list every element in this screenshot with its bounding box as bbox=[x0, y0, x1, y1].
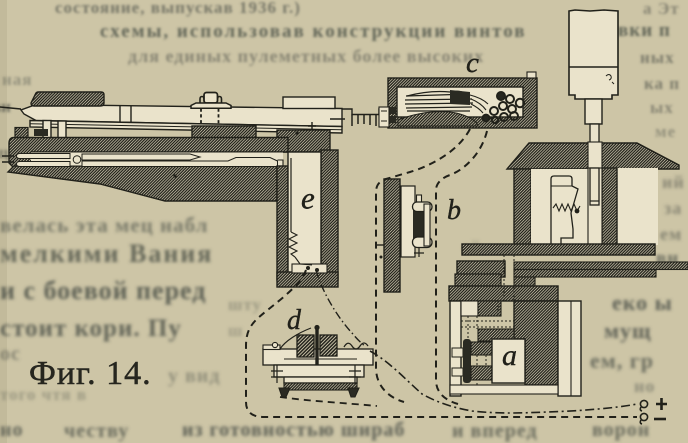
svg-text:ем, гр: ем, гр bbox=[590, 348, 654, 373]
svg-text:a: a bbox=[502, 339, 517, 372]
svg-text:b: b bbox=[447, 195, 461, 226]
svg-text:ос: ос bbox=[0, 343, 21, 365]
svg-text:честву: честву bbox=[64, 420, 129, 442]
svg-text:состояние, выпускав 1936 г.): состояние, выпускав 1936 г.) bbox=[55, 0, 301, 17]
svg-text:еко ы: еко ы bbox=[612, 290, 673, 315]
svg-text:ворон: ворон bbox=[592, 419, 650, 441]
svg-text:из готовностью шираб: из готовностью шираб bbox=[182, 419, 405, 441]
svg-text:а Эт: а Эт bbox=[643, 0, 680, 18]
svg-text:и вперед: и вперед bbox=[452, 420, 538, 442]
svg-text:мелкими Вания: мелкими Вания bbox=[0, 239, 213, 268]
svg-text:и с боевой перед: и с боевой перед bbox=[0, 276, 206, 305]
svg-text:ных: ных bbox=[640, 48, 675, 67]
svg-text:d: d bbox=[287, 305, 302, 336]
svg-text:Фиг. 14.: Фиг. 14. bbox=[29, 355, 152, 392]
svg-text:ых: ых bbox=[650, 98, 674, 117]
svg-text:e: e bbox=[301, 181, 315, 216]
svg-text:ка п: ка п bbox=[644, 74, 680, 93]
svg-text:схемы, использовав конструкции: схемы, использовав конструкции винтов bbox=[100, 21, 527, 42]
svg-text:c: c bbox=[466, 47, 479, 79]
svg-text:щ: щ bbox=[0, 143, 9, 162]
svg-text:шту: шту bbox=[228, 295, 262, 314]
svg-text:у вид: у вид bbox=[168, 365, 220, 387]
svg-text:за: за bbox=[664, 198, 682, 218]
svg-text:ная: ная bbox=[2, 70, 33, 89]
svg-text:но: но bbox=[634, 376, 655, 396]
svg-text:мущ: мущ bbox=[604, 318, 652, 343]
svg-text:стоит кори. Пу: стоит кори. Пу bbox=[0, 315, 182, 342]
svg-text:ме: ме bbox=[655, 122, 676, 141]
svg-text:но: но bbox=[0, 419, 24, 441]
svg-text:ш: ш bbox=[228, 321, 243, 340]
svg-text:ий: ий bbox=[662, 172, 685, 192]
svg-text:для единых пулеметных более вы: для единых пулеметных более высоких bbox=[128, 46, 484, 66]
svg-text:велась эта мец набл: велась эта мец набл bbox=[0, 213, 208, 237]
svg-text:ем: ем bbox=[660, 224, 682, 244]
